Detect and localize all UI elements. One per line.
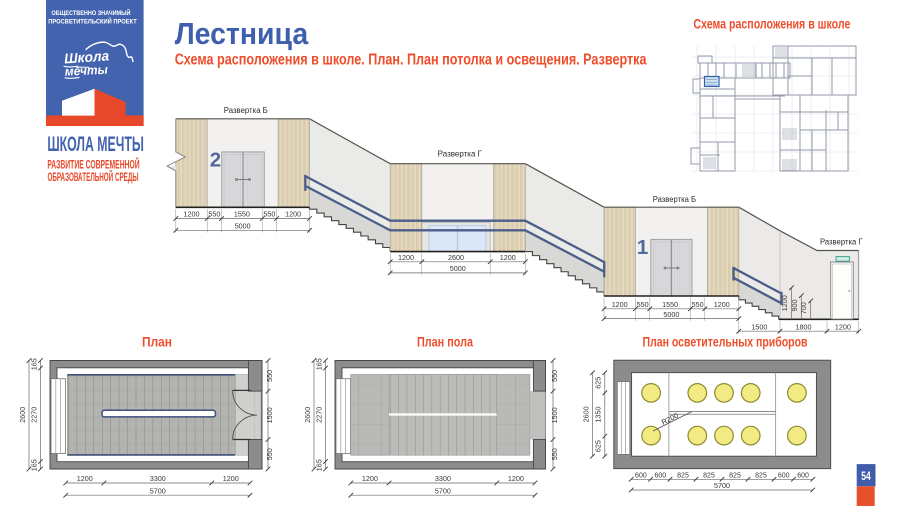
svg-text:1350: 1350 <box>594 407 603 423</box>
svg-text:1200: 1200 <box>77 474 93 483</box>
svg-text:Развертка Б: Развертка Б <box>653 195 696 204</box>
svg-text:900: 900 <box>790 300 799 312</box>
svg-text:1800: 1800 <box>796 322 812 331</box>
svg-text:5000: 5000 <box>663 310 679 319</box>
svg-text:550: 550 <box>263 210 275 219</box>
svg-text:165: 165 <box>314 459 323 471</box>
svg-text:3300: 3300 <box>150 474 166 483</box>
svg-text:825: 825 <box>703 473 715 480</box>
svg-text:5700: 5700 <box>714 481 730 490</box>
svg-text:ПРОСВЕТИТЕЛЬСКИЙ ПРОЕКТ: ПРОСВЕТИТЕЛЬСКИЙ ПРОЕКТ <box>48 16 137 25</box>
svg-text:мечты: мечты <box>64 63 108 79</box>
svg-text:54: 54 <box>861 471 871 483</box>
svg-text:ОБРАЗОВАТЕЛЬНОЙ СРЕДЫ: ОБРАЗОВАТЕЛЬНОЙ СРЕДЫ <box>48 171 139 184</box>
svg-text:1200: 1200 <box>714 300 730 309</box>
svg-text:2: 2 <box>210 149 221 172</box>
svg-text:Схема расположения в школе: Схема расположения в школе <box>693 16 850 31</box>
svg-text:600: 600 <box>635 473 647 480</box>
svg-text:1550: 1550 <box>234 210 250 219</box>
svg-text:2600: 2600 <box>448 253 464 262</box>
svg-text:165: 165 <box>29 358 38 370</box>
svg-text:1500: 1500 <box>751 322 767 331</box>
svg-text:2600: 2600 <box>581 406 590 422</box>
svg-text:550: 550 <box>692 300 704 309</box>
svg-text:Развертка Г: Развертка Г <box>438 150 483 159</box>
svg-text:625: 625 <box>594 377 603 389</box>
svg-text:2270: 2270 <box>314 407 323 423</box>
svg-text:1: 1 <box>637 236 648 259</box>
svg-text:165: 165 <box>314 358 323 370</box>
svg-text:825: 825 <box>729 473 741 480</box>
svg-text:5700: 5700 <box>435 486 451 495</box>
svg-text:План пола: План пола <box>417 335 473 350</box>
svg-text:825: 825 <box>677 473 689 480</box>
svg-text:План: План <box>142 335 172 350</box>
svg-text:825: 825 <box>755 473 767 480</box>
svg-text:Лестница: Лестница <box>175 16 309 51</box>
svg-text:1200: 1200 <box>780 295 789 311</box>
svg-text:165: 165 <box>29 459 38 471</box>
svg-text:550: 550 <box>208 210 220 219</box>
svg-text:1200: 1200 <box>285 210 301 219</box>
svg-text:1200: 1200 <box>223 474 239 483</box>
svg-text:1200: 1200 <box>508 474 524 483</box>
svg-text:5000: 5000 <box>450 264 466 273</box>
svg-text:1500: 1500 <box>550 407 559 423</box>
svg-text:РАЗВИТИЕ СОВРЕМЕННОЙ: РАЗВИТИЕ СОВРЕМЕННОЙ <box>47 159 139 172</box>
svg-text:1200: 1200 <box>500 253 516 262</box>
svg-text:2270: 2270 <box>29 407 38 423</box>
svg-text:700: 700 <box>799 302 808 314</box>
svg-text:ШКОЛА МЕЧТЫ: ШКОЛА МЕЧТЫ <box>47 132 144 156</box>
svg-text:Схема расположения в школе. Пл: Схема расположения в школе. План. План п… <box>175 51 647 68</box>
svg-text:План осветительных приборов: План осветительных приборов <box>643 335 808 350</box>
svg-text:600: 600 <box>797 473 809 480</box>
svg-text:600: 600 <box>654 473 666 480</box>
svg-text:ОБЩЕСТВЕННО ЗНАЧИМЫЙ: ОБЩЕСТВЕННО ЗНАЧИМЫЙ <box>52 8 131 17</box>
svg-text:2600: 2600 <box>18 407 27 423</box>
svg-text:625: 625 <box>594 440 603 452</box>
svg-text:2600: 2600 <box>303 407 312 423</box>
svg-text:1500: 1500 <box>265 407 274 423</box>
svg-text:550: 550 <box>550 448 559 460</box>
svg-text:550: 550 <box>265 370 274 382</box>
svg-text:550: 550 <box>637 300 649 309</box>
svg-text:1200: 1200 <box>362 474 378 483</box>
svg-text:Развертка Г: Развертка Г <box>820 238 863 247</box>
svg-text:5700: 5700 <box>150 486 166 495</box>
svg-text:Развертка Б: Развертка Б <box>224 106 268 115</box>
svg-text:1200: 1200 <box>184 210 200 219</box>
svg-text:600: 600 <box>778 473 790 480</box>
svg-text:3300: 3300 <box>435 474 451 483</box>
svg-text:550: 550 <box>550 370 559 382</box>
svg-text:1200: 1200 <box>398 253 414 262</box>
svg-text:550: 550 <box>265 448 274 460</box>
svg-text:5000: 5000 <box>235 222 251 231</box>
svg-text:1200: 1200 <box>835 322 851 331</box>
svg-text:R200: R200 <box>660 411 680 427</box>
svg-text:1550: 1550 <box>662 300 678 309</box>
svg-text:1200: 1200 <box>612 300 628 309</box>
